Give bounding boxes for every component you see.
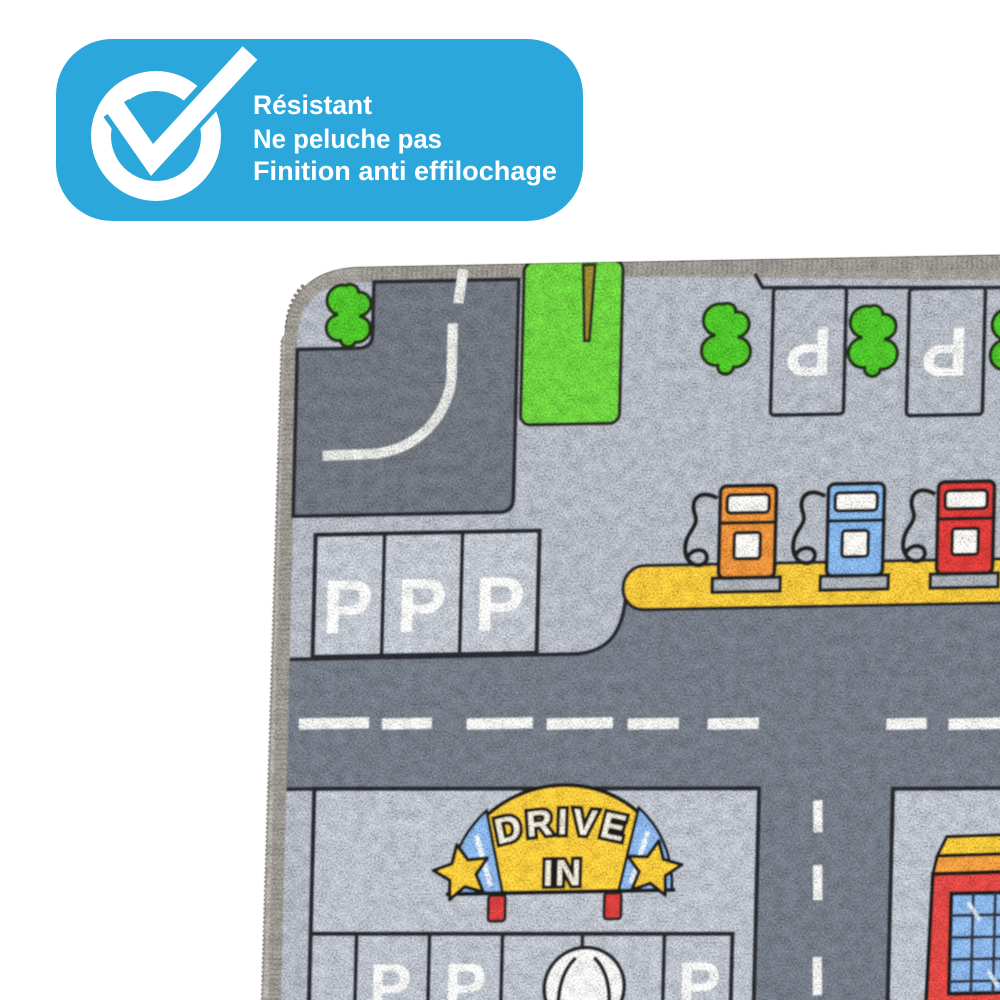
svg-text:P: P: [368, 950, 412, 1000]
svg-text:P: P: [921, 313, 970, 392]
svg-text:P: P: [395, 563, 448, 649]
svg-text:Résistant: Résistant: [253, 90, 372, 120]
svg-text:P: P: [473, 562, 526, 648]
svg-text:P: P: [677, 948, 721, 1000]
svg-text:Finition anti effilochage: Finition anti effilochage: [253, 156, 557, 186]
svg-text:P: P: [785, 312, 834, 391]
svg-text:Ne peluche pas: Ne peluche pas: [253, 124, 442, 154]
svg-text:P: P: [443, 949, 487, 1000]
svg-text:IN: IN: [543, 852, 584, 894]
svg-text:P: P: [321, 565, 374, 651]
